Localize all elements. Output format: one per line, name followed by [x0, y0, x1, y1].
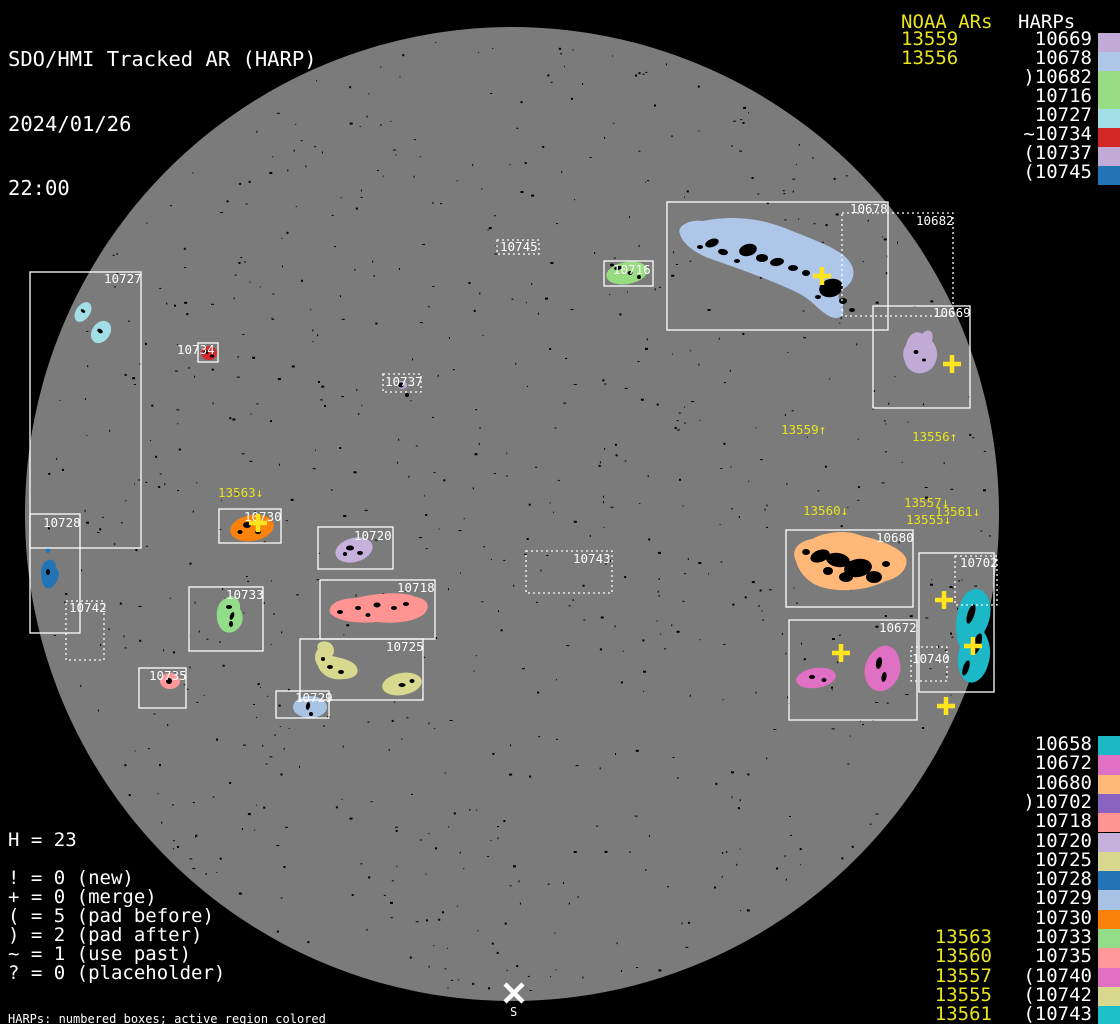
disk-speckle: [270, 420, 272, 422]
legend-bottom-harp-10729: 10729: [932, 889, 1092, 908]
disk-speckle: [262, 745, 263, 747]
disk-speckle: [301, 280, 303, 282]
umbra-spot: [849, 308, 855, 312]
disk-speckle: [537, 692, 539, 694]
disk-speckle: [512, 299, 514, 300]
umbra-spot: [391, 606, 397, 610]
disk-speckle: [475, 409, 477, 410]
disk-speckle: [625, 461, 627, 462]
disk-speckle: [216, 872, 217, 873]
disk-speckle: [969, 434, 971, 436]
disk-speckle: [755, 427, 756, 428]
disk-speckle: [62, 469, 64, 471]
umbra-spot: [802, 270, 810, 276]
disk-speckle: [396, 866, 397, 867]
disk-speckle: [938, 646, 939, 648]
disk-speckle: [400, 76, 401, 77]
disk-speckle: [148, 748, 150, 749]
disk-speckle: [272, 294, 274, 295]
disk-speckle: [139, 640, 141, 642]
disk-speckle: [596, 826, 598, 827]
disk-speckle: [677, 429, 680, 430]
disk-speckle: [698, 364, 699, 366]
legend-swatch-10742: [1098, 987, 1120, 1006]
disk-speckle: [555, 933, 556, 934]
disk-speckle: [158, 486, 160, 488]
disk-speckle: [573, 599, 574, 601]
umbra-spot: [355, 606, 361, 610]
disk-speckle: [86, 522, 89, 524]
disk-speckle: [850, 736, 851, 737]
disk-speckle: [529, 504, 531, 506]
disk-speckle: [252, 357, 255, 359]
disk-speckle: [189, 367, 190, 369]
legend-swatch-10672: [1098, 755, 1120, 774]
disk-speckle: [719, 338, 720, 340]
disk-speckle: [801, 643, 802, 645]
harp-box-label-10716: 10716: [613, 262, 651, 277]
disk-speckle: [256, 717, 257, 718]
disk-speckle: [445, 968, 447, 969]
disk-speckle: [645, 348, 648, 350]
disk-speckle: [673, 251, 674, 253]
disk-speckle: [790, 835, 792, 836]
disk-speckle: [520, 903, 521, 905]
disk-speckle: [492, 753, 494, 755]
disk-speckle: [884, 420, 885, 422]
disk-speckle: [563, 882, 564, 884]
disk-speckle: [489, 227, 492, 229]
disk-speckle: [292, 366, 295, 368]
disk-speckle: [600, 767, 601, 769]
disk-speckle: [822, 242, 824, 243]
disk-speckle: [563, 403, 566, 404]
disk-speckle: [658, 552, 661, 554]
disk-speckle: [858, 486, 860, 488]
disk-speckle: [831, 687, 833, 689]
disk-speckle: [206, 639, 208, 640]
disk-speckle: [341, 197, 342, 198]
disk-speckle: [367, 929, 368, 931]
disk-speckle: [425, 514, 427, 516]
disk-speckle: [428, 833, 429, 834]
disk-speckle: [494, 215, 496, 216]
disk-speckle: [373, 275, 375, 276]
disk-speckle: [782, 633, 783, 635]
disk-speckle: [281, 774, 283, 776]
disk-speckle: [271, 644, 272, 645]
disk-speckle: [673, 757, 675, 758]
disk-speckle: [249, 461, 252, 462]
disk-speckle: [509, 774, 512, 776]
disk-speckle: [740, 799, 741, 801]
disk-speckle: [582, 83, 583, 85]
disk-speckle: [708, 573, 709, 574]
disk-speckle: [923, 403, 924, 405]
disk-speckle: [683, 601, 685, 602]
disk-speckle: [506, 476, 508, 477]
disk-speckle: [645, 869, 646, 871]
disk-speckle: [660, 634, 661, 635]
disk-speckle: [672, 354, 673, 355]
disk-speckle: [639, 72, 641, 74]
disk-speckle: [762, 620, 764, 621]
disk-speckle: [361, 863, 363, 864]
harp-box-label-10743: 10743: [573, 551, 611, 566]
disk-speckle: [617, 942, 618, 944]
disk-speckle: [785, 414, 786, 416]
disk-speckle: [571, 98, 573, 100]
harp-box-label-10682: 10682: [916, 213, 954, 228]
disk-speckle: [757, 194, 759, 195]
disk-speckle: [723, 699, 724, 700]
disk-speckle: [356, 595, 357, 597]
disk-speckle: [569, 605, 571, 606]
disk-speckle: [748, 112, 749, 113]
disk-speckle: [691, 401, 694, 402]
disk-speckle: [114, 543, 115, 545]
disk-speckle: [984, 451, 986, 452]
disk-speckle: [566, 645, 569, 646]
disk-speckle: [615, 625, 616, 627]
disk-speckle: [166, 303, 167, 305]
disk-speckle: [134, 384, 136, 385]
disk-speckle: [740, 910, 741, 911]
disk-speckle: [894, 376, 895, 377]
disk-speckle: [339, 447, 341, 449]
disk-speckle: [276, 845, 279, 846]
disk-speckle: [503, 560, 505, 561]
disk-speckle: [684, 573, 686, 574]
disk-speckle: [360, 126, 361, 127]
disk-speckle: [736, 864, 737, 866]
disk-speckle: [748, 481, 749, 482]
disk-speckle: [479, 428, 481, 429]
disk-speckle: [671, 275, 674, 277]
disk-speckle: [767, 505, 768, 507]
disk-speckle: [510, 885, 512, 886]
legend-swatch-10730: [1098, 910, 1120, 929]
disk-speckle: [558, 480, 560, 481]
footnotes: HARPs: numbered boxes; active region col…: [8, 988, 427, 1024]
harp-box-label-10733: 10733: [226, 587, 264, 602]
disk-speckle: [535, 467, 537, 468]
disk-speckle: [708, 309, 711, 311]
disk-speckle: [424, 495, 425, 496]
disk-speckle: [253, 704, 255, 705]
disk-speckle: [648, 475, 649, 477]
disk-speckle: [190, 666, 191, 668]
disk-speckle: [684, 423, 686, 424]
disk-speckle: [494, 473, 496, 474]
disk-speckle: [483, 335, 484, 336]
legend-swatch-10720: [1098, 833, 1120, 852]
disk-speckle: [457, 180, 458, 181]
disk-speckle: [179, 449, 181, 451]
disk-speckle: [733, 121, 736, 122]
south-pole-label: S: [510, 1005, 517, 1019]
disk-speckle: [174, 305, 176, 307]
disk-speckle: [609, 294, 610, 295]
legend-swatch-10678: [1098, 52, 1120, 71]
disk-speckle: [636, 967, 638, 968]
disk-speckle: [266, 764, 268, 765]
disk-speckle: [731, 146, 733, 147]
disk-speckle: [545, 298, 548, 300]
disk-speckle: [832, 728, 835, 729]
disk-speckle: [177, 423, 178, 424]
legend-swatch-10669: [1098, 33, 1120, 52]
disk-speckle: [296, 594, 299, 595]
disk-speckle: [531, 283, 532, 285]
disk-speckle: [862, 724, 864, 725]
disk-speckle: [402, 54, 404, 56]
disk-speckle: [792, 179, 795, 180]
disk-speckle: [145, 482, 147, 483]
disk-speckle: [953, 588, 954, 589]
disk-speckle: [488, 230, 489, 231]
disk-speckle: [604, 527, 605, 528]
disk-speckle: [420, 322, 423, 323]
disk-speckle: [700, 639, 701, 640]
disk-speckle: [679, 479, 681, 481]
disk-speckle: [212, 369, 214, 371]
disk-speckle: [340, 295, 341, 297]
disk-speckle: [491, 559, 492, 560]
disk-speckle: [604, 384, 606, 385]
disk-speckle: [747, 909, 750, 911]
disk-speckle: [897, 242, 898, 244]
disk-speckle: [556, 969, 557, 970]
disk-speckle: [752, 177, 754, 179]
legend-bottom-harp-10740: (10740: [932, 967, 1092, 986]
disk-speckle: [667, 886, 669, 887]
active-region-blob-10658: [956, 589, 990, 683]
disk-speckle: [368, 876, 370, 878]
disk-speckle: [526, 302, 527, 303]
disk-speckle: [925, 618, 928, 619]
disk-speckle: [536, 602, 538, 603]
disk-speckle: [279, 464, 280, 466]
disk-speckle: [445, 772, 446, 773]
disk-speckle: [603, 496, 604, 498]
disk-speckle: [240, 257, 242, 258]
disk-speckle: [636, 750, 639, 752]
umbra-spot: [226, 605, 232, 609]
legend-swatch-10718: [1098, 813, 1120, 832]
umbra-spot: [374, 603, 381, 608]
disk-speckle: [642, 639, 644, 641]
disk-speckle: [234, 297, 235, 299]
disk-speckle: [950, 586, 953, 588]
disk-speckle: [343, 746, 344, 748]
disk-speckle: [494, 254, 497, 255]
disk-speckle: [384, 895, 386, 896]
disk-speckle: [760, 590, 762, 592]
disk-speckle: [743, 122, 745, 124]
disk-speckle: [450, 720, 453, 721]
disk-speckle: [556, 739, 558, 740]
disk-speckle: [426, 548, 428, 549]
disk-speckle: [884, 238, 887, 240]
disk-speckle: [343, 515, 346, 517]
disk-speckle: [720, 468, 722, 469]
disk-speckle: [113, 255, 115, 256]
umbra-spot: [802, 549, 810, 555]
disk-speckle: [858, 439, 859, 440]
disk-speckle: [279, 705, 281, 707]
disk-speckle: [135, 549, 137, 551]
disk-speckle: [481, 189, 482, 190]
disk-speckle: [645, 72, 647, 73]
disk-speckle: [346, 624, 349, 626]
disk-speckle: [818, 490, 820, 491]
disk-speckle: [529, 776, 531, 778]
disk-speckle: [675, 427, 677, 429]
disk-speckle: [291, 499, 294, 501]
disk-speckle: [516, 965, 518, 967]
disk-speckle: [528, 976, 530, 977]
disk-speckle: [318, 381, 320, 383]
disk-speckle: [242, 453, 245, 454]
disk-speckle: [190, 563, 192, 565]
disk-speckle: [125, 647, 127, 648]
disk-speckle: [690, 350, 691, 351]
disk-speckle: [547, 74, 549, 76]
disk-speckle: [401, 739, 402, 740]
disk-speckle: [521, 191, 524, 193]
disk-speckle: [594, 252, 595, 254]
disk-speckle: [406, 717, 408, 718]
umbra-spot: [815, 295, 821, 299]
disk-speckle: [389, 749, 390, 751]
disk-speckle: [263, 807, 265, 809]
disk-speckle: [786, 879, 787, 881]
disk-speckle: [887, 703, 889, 704]
disk-speckle: [187, 689, 189, 690]
disk-speckle: [368, 722, 370, 723]
disk-speckle: [639, 245, 640, 247]
disk-speckle: [459, 530, 462, 531]
disk-speckle: [786, 483, 787, 485]
disk-speckle: [714, 887, 716, 889]
disk-speckle: [132, 377, 135, 379]
harp-box-label-10672: 10672: [879, 620, 917, 635]
disk-speckle: [950, 633, 952, 635]
disk-speckle: [394, 702, 395, 703]
disk-speckle: [367, 116, 368, 118]
disk-speckle: [796, 603, 798, 604]
disk-speckle: [492, 943, 494, 945]
disk-speckle: [239, 893, 242, 895]
disk-speckle: [177, 490, 179, 491]
disk-speckle: [426, 919, 428, 921]
umbra-spot: [839, 298, 847, 304]
disk-speckle: [64, 601, 65, 603]
disk-speckle: [930, 668, 932, 669]
disk-speckle: [97, 532, 99, 533]
disk-speckle: [766, 527, 768, 528]
disk-speckle: [800, 864, 801, 865]
disk-speckle: [235, 275, 237, 276]
disk-speckle: [260, 687, 261, 688]
disk-speckle: [184, 302, 187, 304]
disk-speckle: [365, 510, 368, 511]
disk-speckle: [438, 919, 440, 921]
disk-speckle: [659, 287, 661, 288]
disk-speckle: [510, 164, 511, 165]
disk-speckle: [538, 736, 540, 737]
disk-speckle: [438, 375, 439, 377]
disk-speckle: [285, 827, 288, 828]
disk-speckle: [342, 319, 345, 320]
disk-speckle: [739, 151, 742, 152]
disk-speckle: [473, 487, 474, 489]
disk-speckle: [48, 473, 50, 475]
disk-speckle: [649, 835, 650, 837]
disk-speckle: [115, 286, 116, 288]
disk-speckle: [447, 948, 448, 949]
disk-speckle: [356, 389, 357, 391]
legend-bottom-harp-10742: (10742: [932, 986, 1092, 1005]
legend-bottom-harp-10702: )10702: [932, 793, 1092, 812]
disk-speckle: [600, 461, 601, 463]
disk-speckle: [690, 695, 691, 697]
disk-speckle: [583, 585, 585, 587]
disk-speckle: [56, 458, 57, 460]
harp-box-label-10680: 10680: [876, 530, 914, 545]
disk-speckle: [474, 310, 476, 312]
disk-speckle: [578, 896, 579, 898]
disk-speckle: [469, 282, 471, 284]
disk-speckle: [443, 479, 445, 481]
time-label: 22:00: [8, 178, 317, 200]
disk-speckle: [876, 814, 879, 815]
disk-speckle: [434, 728, 435, 729]
disk-speckle: [671, 136, 673, 137]
disk-speckle: [677, 777, 678, 779]
disk-speckle: [826, 224, 828, 226]
disk-speckle: [671, 624, 672, 626]
disk-speckle: [454, 812, 456, 814]
disk-speckle: [87, 365, 88, 367]
disk-speckle: [724, 382, 726, 383]
disk-speckle: [237, 377, 240, 378]
disk-speckle: [464, 518, 465, 519]
disk-speckle: [120, 603, 122, 605]
disk-speckle: [410, 400, 411, 401]
footnote-harps: HARPs: numbered boxes; active region col…: [8, 1013, 427, 1024]
disk-speckle: [60, 400, 61, 401]
disk-speckle: [170, 598, 171, 599]
disk-speckle: [698, 131, 699, 132]
legend-bottom-harp-10658: 10658: [932, 735, 1092, 754]
disk-speckle: [497, 952, 499, 954]
disk-speckle: [683, 505, 684, 506]
disk-speckle: [627, 291, 628, 292]
disk-speckle: [414, 139, 416, 140]
disk-speckle: [841, 317, 842, 319]
disk-speckle: [773, 729, 776, 730]
disk-speckle: [184, 267, 186, 268]
umbra-spot: [405, 393, 409, 397]
disk-speckle: [222, 588, 223, 590]
disk-speckle: [875, 702, 878, 703]
disk-speckle: [643, 74, 645, 75]
disk-speckle: [145, 343, 147, 345]
legend-swatch-10716: [1098, 90, 1120, 109]
noaa-disk-label-13560: 13560↓: [803, 503, 848, 518]
